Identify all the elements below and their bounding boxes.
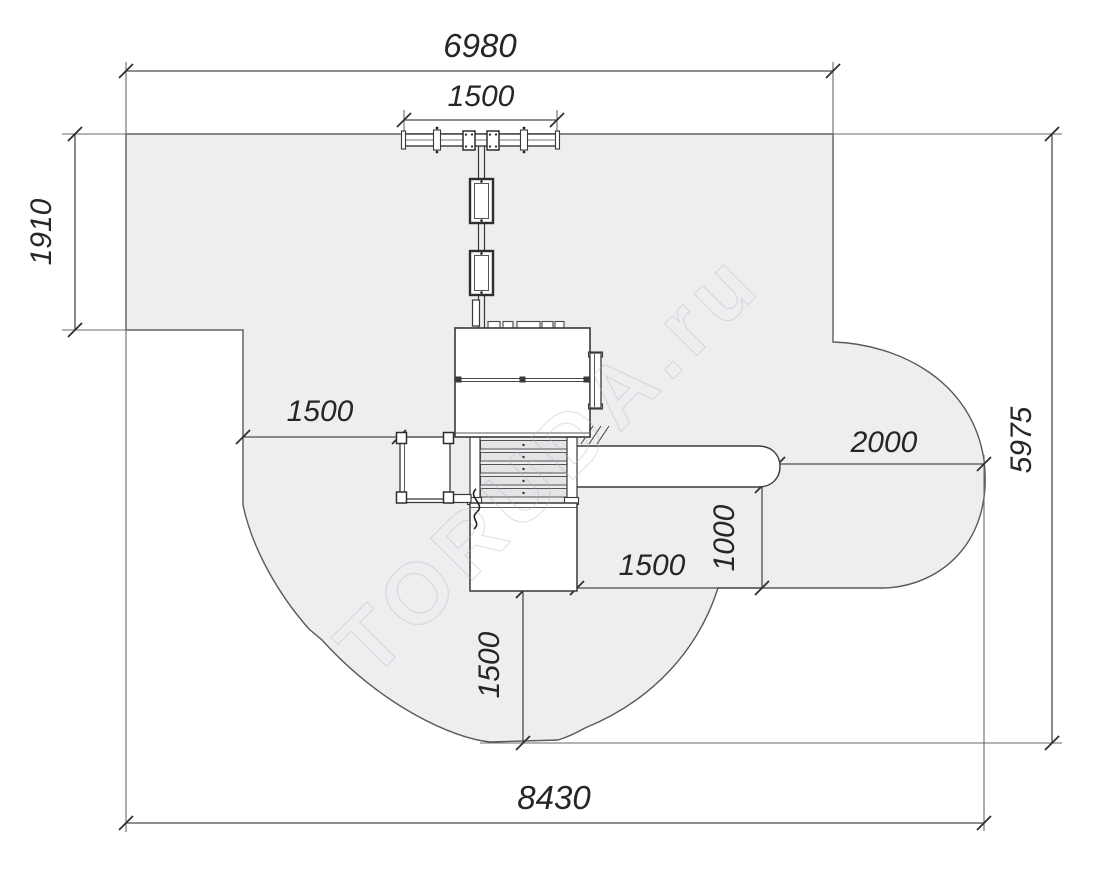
swing-seat-2 [470, 251, 493, 295]
swing-chain-connector [473, 300, 480, 326]
playground-plan-drawing: TORUDA.ru 6980 1500 1910 1500 2000 5975 … [0, 0, 1111, 880]
dim-label-5975: 5975 [1005, 406, 1038, 473]
dim-label-1500-left: 1500 [287, 395, 354, 428]
beam-bolt-right [521, 127, 528, 154]
dim-label-2000: 2000 [850, 426, 918, 459]
dim-label-1000: 1000 [708, 504, 741, 571]
dim-label-1500-bottom: 1500 [473, 631, 506, 698]
dim-label-1910: 1910 [25, 198, 58, 265]
swing-seat-1 [470, 179, 493, 223]
dim-label-1500-top: 1500 [448, 80, 515, 113]
dim-label-1500-mid: 1500 [619, 549, 686, 582]
drawing-canvas: TORUDA.ru 6980 1500 1910 1500 2000 5975 … [0, 0, 1111, 880]
dim-label-8430: 8430 [517, 779, 591, 816]
beam-bolt-left [434, 127, 441, 154]
dim-label-6980: 6980 [443, 27, 517, 64]
